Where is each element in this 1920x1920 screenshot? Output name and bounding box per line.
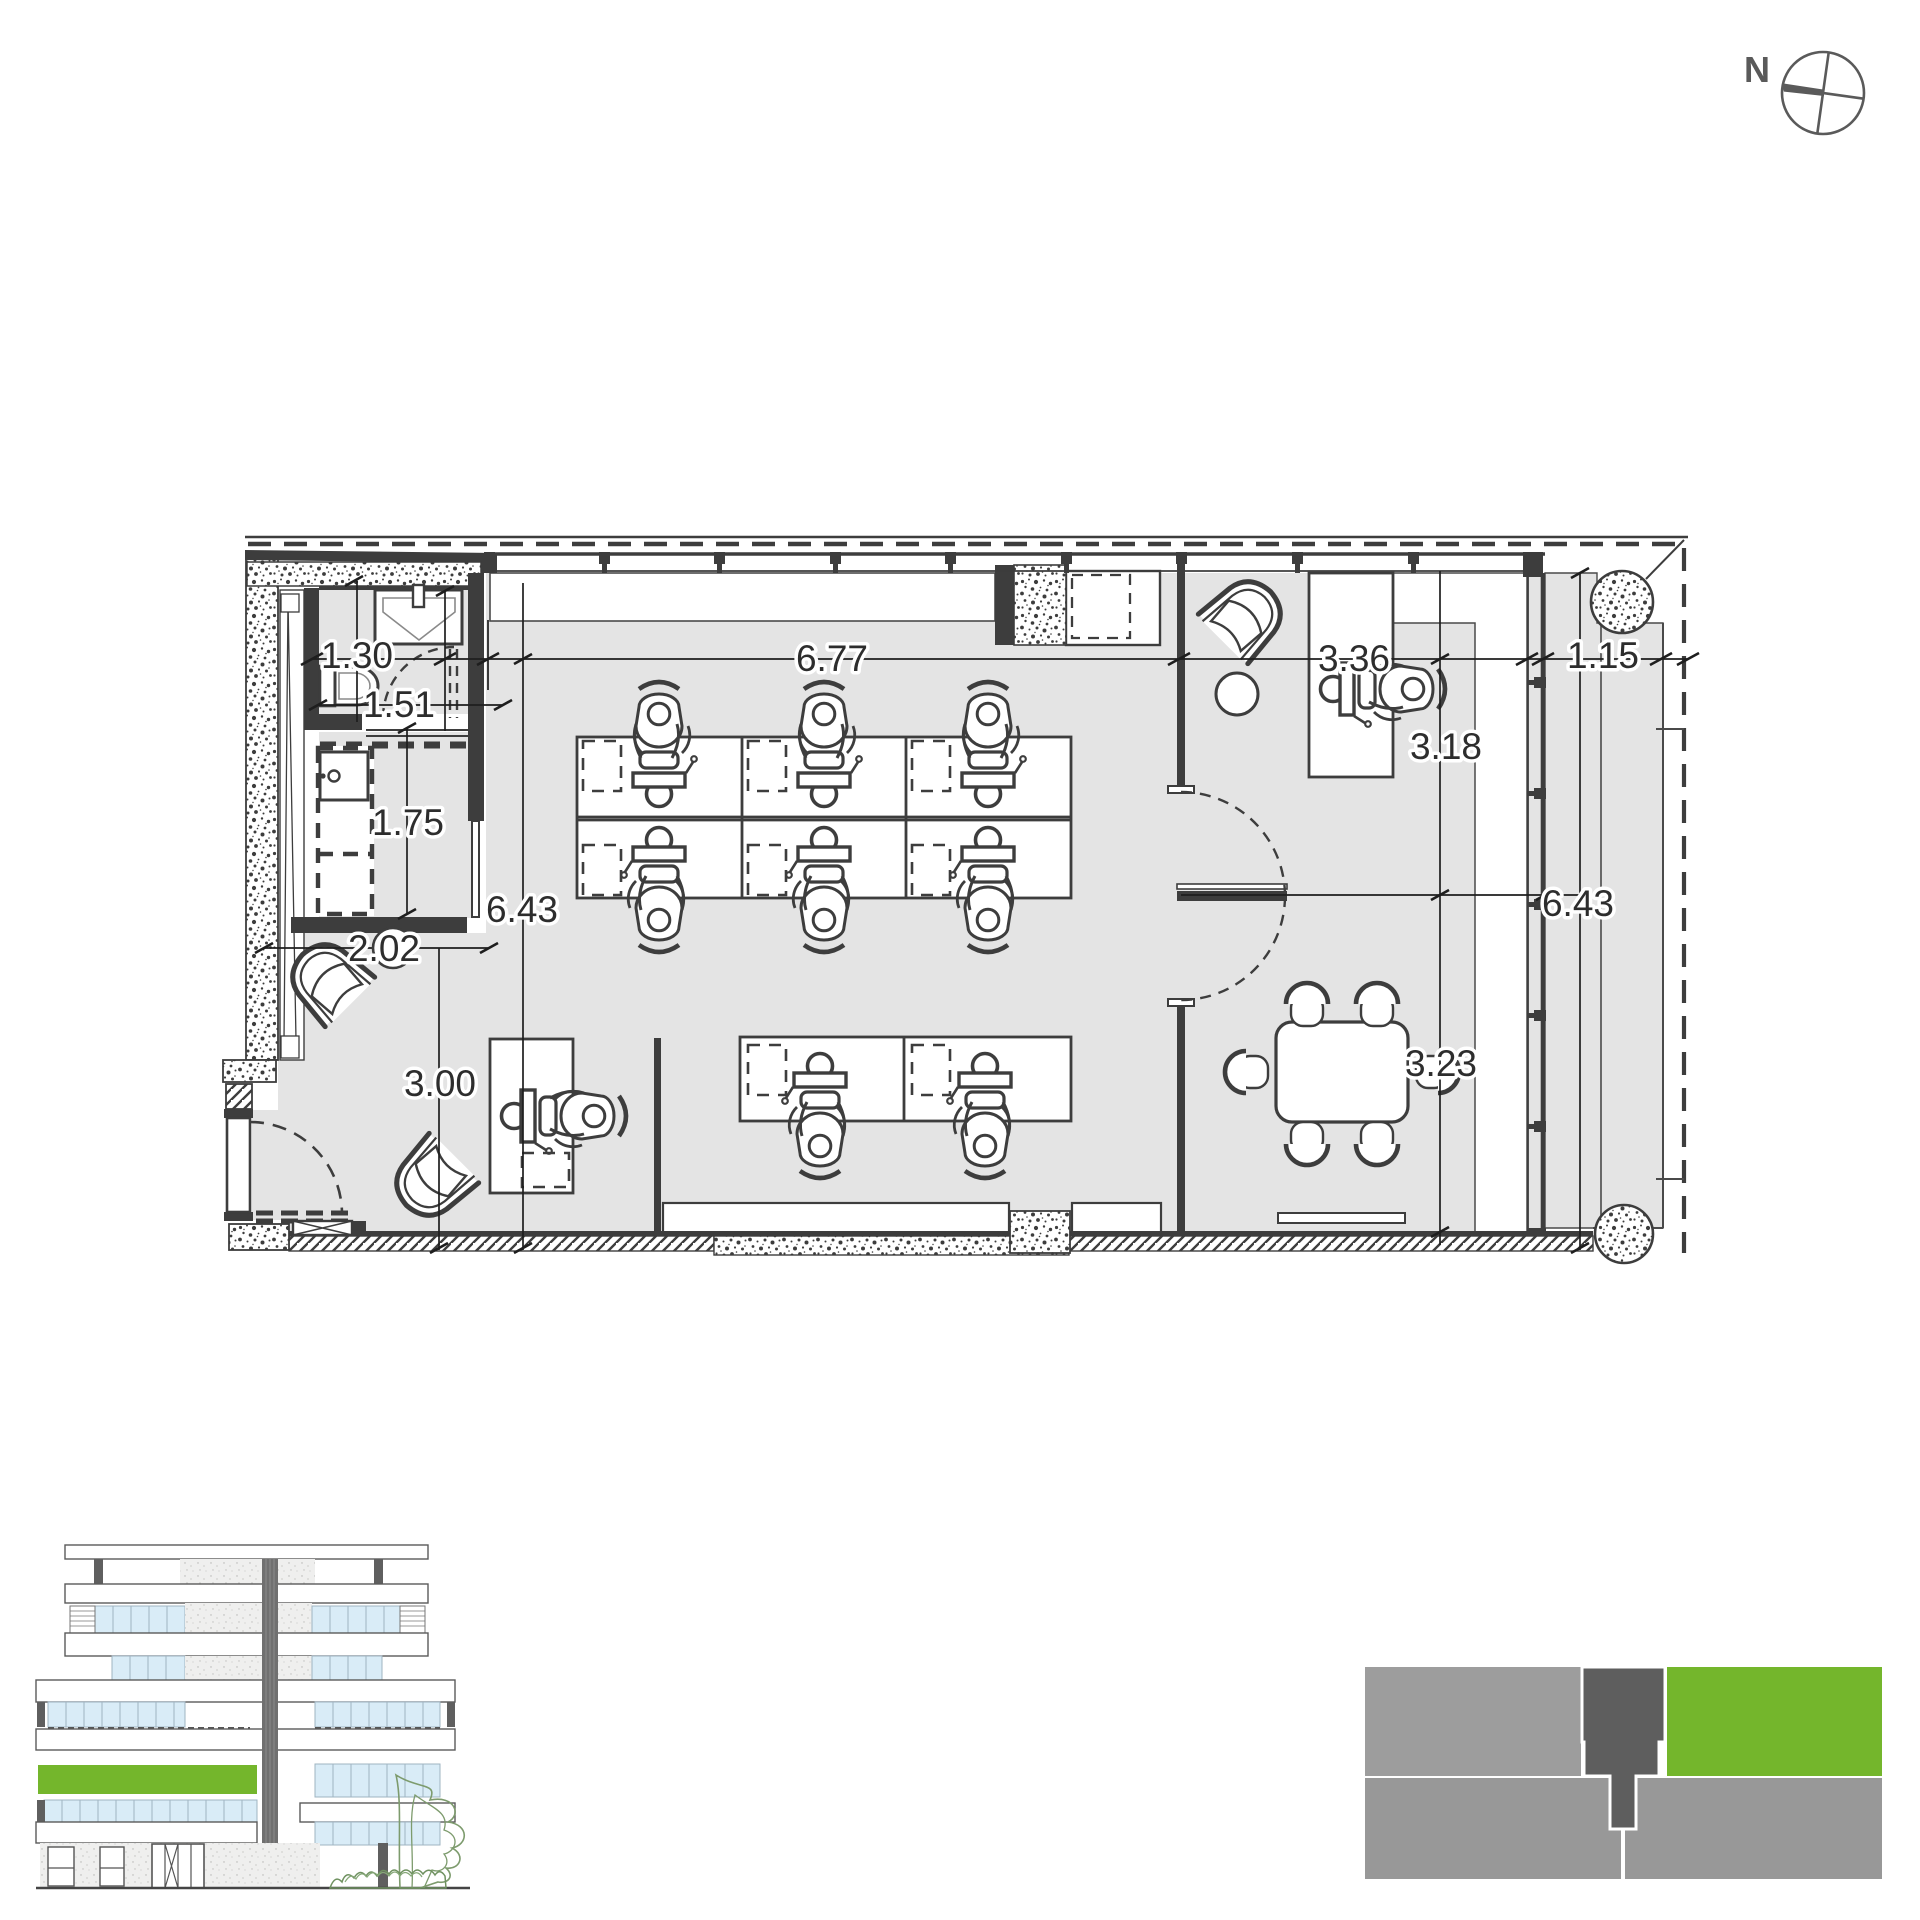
svg-text:1.75: 1.75: [372, 802, 444, 843]
svg-text:1.15: 1.15: [1567, 635, 1639, 676]
svg-text:6.43: 6.43: [486, 889, 558, 930]
svg-text:N: N: [1744, 49, 1770, 90]
svg-text:2.02: 2.02: [348, 928, 420, 969]
svg-text:6.43: 6.43: [1542, 883, 1614, 924]
svg-text:1.51: 1.51: [363, 684, 435, 725]
svg-text:3.18: 3.18: [1410, 726, 1482, 767]
svg-text:3.00: 3.00: [404, 1063, 476, 1104]
svg-text:3.23: 3.23: [1405, 1043, 1477, 1084]
svg-text:1.30: 1.30: [321, 635, 393, 676]
svg-text:6.77: 6.77: [796, 638, 868, 679]
svg-text:3.36: 3.36: [1318, 638, 1390, 679]
